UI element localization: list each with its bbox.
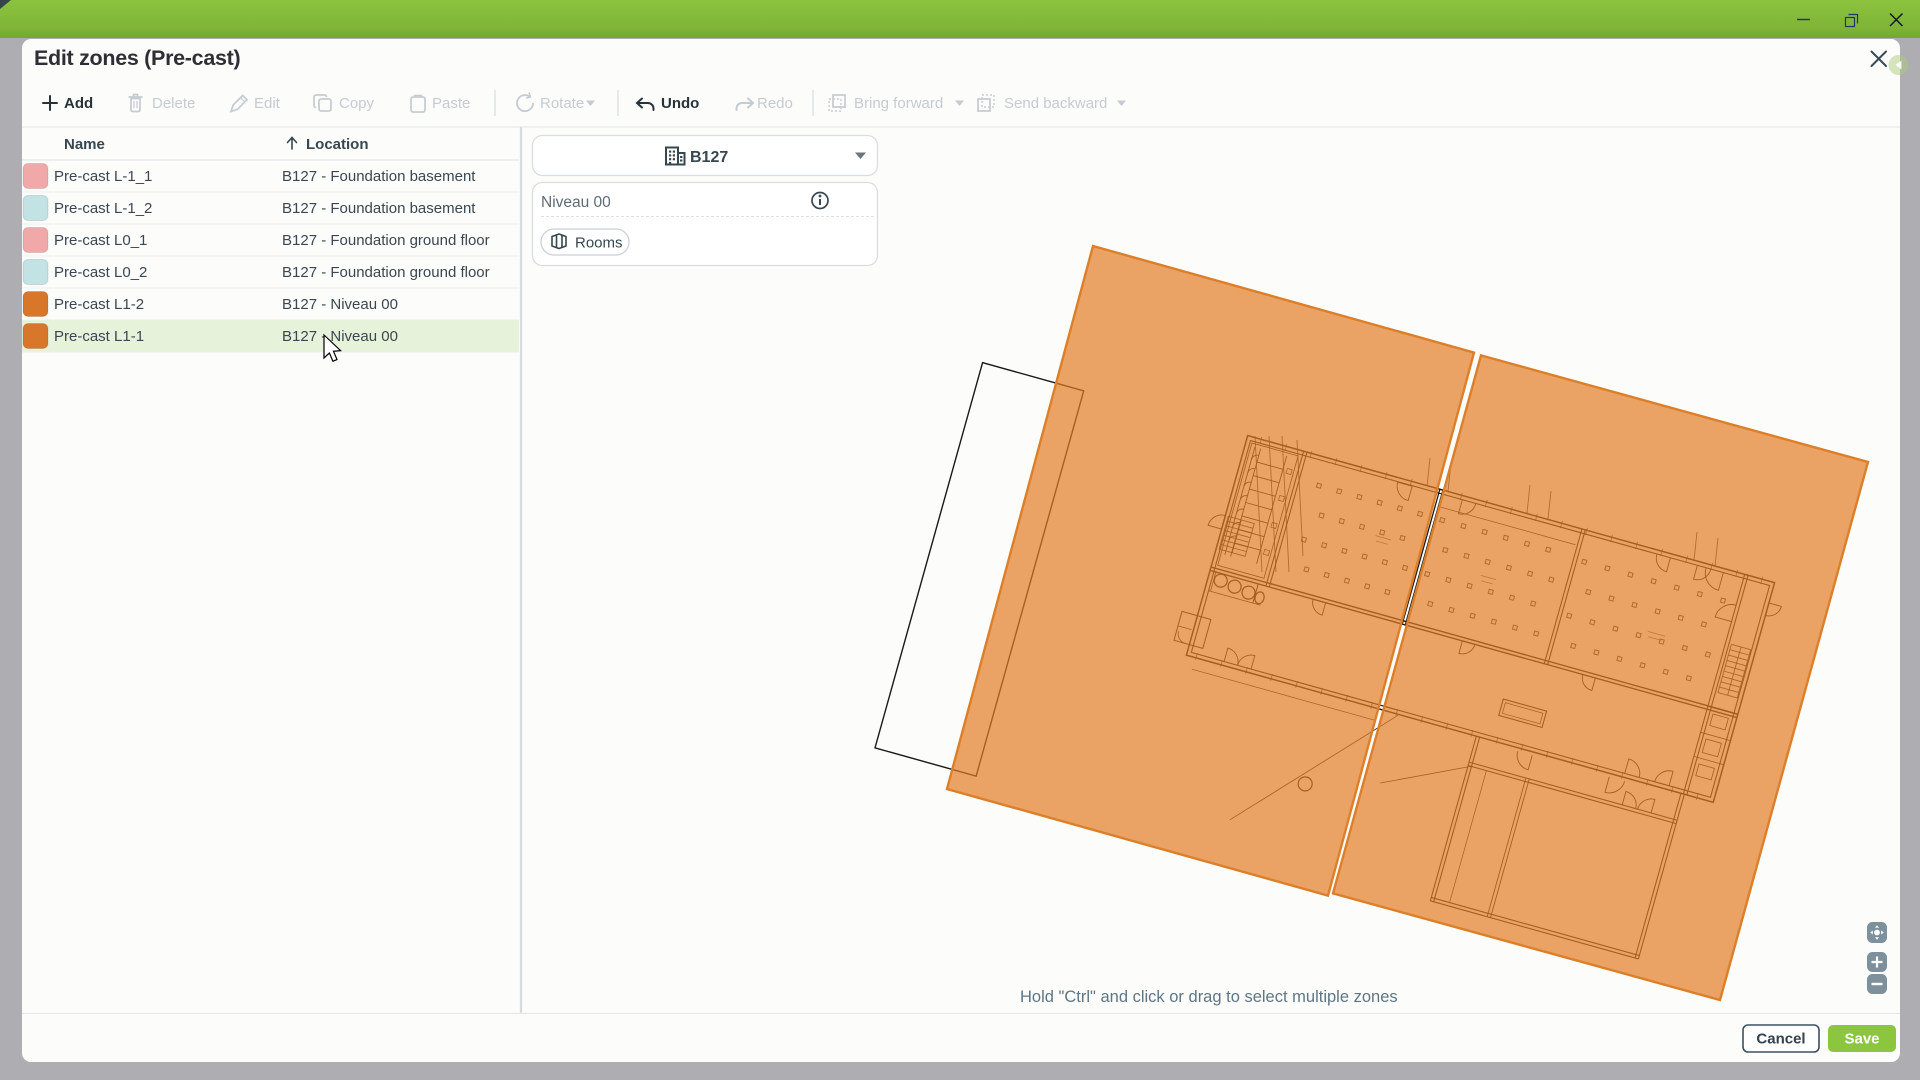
svg-text:Copy: Copy — [339, 95, 375, 112]
svg-text:B127: B127 — [690, 149, 728, 166]
svg-text:B127 - Niveau 00: B127 - Niveau 00 — [282, 296, 398, 313]
svg-text:Location: Location — [306, 136, 369, 153]
svg-text:Save: Save — [1844, 1031, 1879, 1048]
svg-text:B127 - Foundation basement: B127 - Foundation basement — [282, 168, 476, 185]
svg-text:Pre-cast L1-2: Pre-cast L1-2 — [54, 296, 144, 313]
svg-text:Pre-cast L0_2: Pre-cast L0_2 — [54, 264, 147, 281]
svg-text:Rooms: Rooms — [575, 235, 623, 252]
svg-text:Pre-cast L0_1: Pre-cast L0_1 — [54, 232, 147, 249]
svg-text:Edit zones (Pre-cast): Edit zones (Pre-cast) — [34, 46, 240, 70]
svg-text:Redo: Redo — [757, 95, 793, 112]
svg-text:Pre-cast L-1_2: Pre-cast L-1_2 — [54, 200, 152, 217]
svg-text:Niveau 00: Niveau 00 — [541, 194, 611, 211]
svg-text:Add: Add — [64, 95, 93, 112]
svg-text:Delete: Delete — [152, 95, 195, 112]
svg-text:Paste: Paste — [432, 95, 470, 112]
svg-text:Pre-cast L-1_1: Pre-cast L-1_1 — [54, 168, 152, 185]
svg-text:Rotate: Rotate — [540, 95, 584, 112]
svg-text:Cancel: Cancel — [1756, 1031, 1805, 1048]
svg-text:B127 - Niveau 00: B127 - Niveau 00 — [282, 328, 398, 345]
svg-text:B127 - Foundation ground floor: B127 - Foundation ground floor — [282, 232, 490, 249]
svg-text:B127 - Foundation ground floor: B127 - Foundation ground floor — [282, 264, 490, 281]
svg-text:Name: Name — [64, 136, 105, 153]
svg-text:Hold "Ctrl" and click or drag: Hold "Ctrl" and click or drag to select … — [1020, 988, 1398, 1006]
svg-text:B127 - Foundation basement: B127 - Foundation basement — [282, 200, 476, 217]
svg-text:Send backward: Send backward — [1004, 95, 1107, 112]
svg-text:Undo: Undo — [661, 95, 699, 112]
svg-text:Edit: Edit — [254, 95, 281, 112]
svg-text:Bring forward: Bring forward — [854, 95, 943, 112]
svg-text:Pre-cast L1-1: Pre-cast L1-1 — [54, 328, 144, 345]
